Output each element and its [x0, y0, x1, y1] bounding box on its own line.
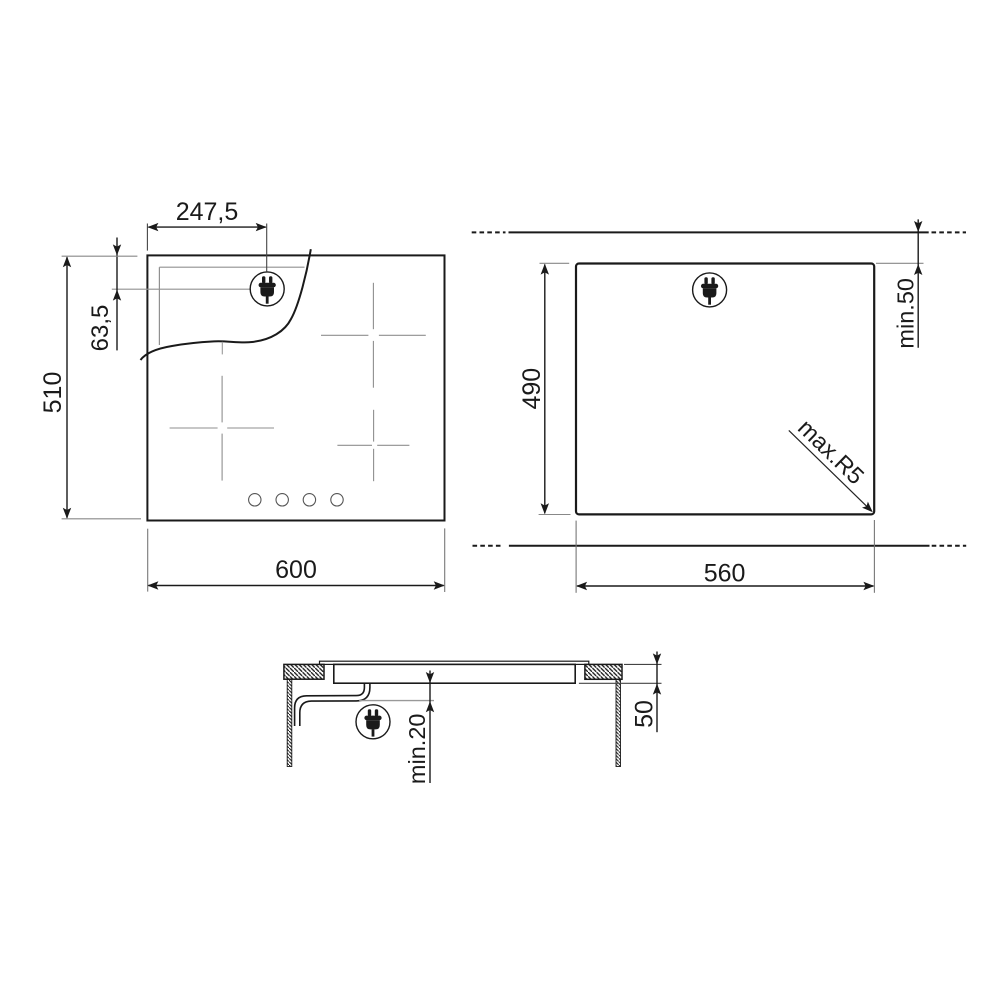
svg-text:min.20: min.20 — [404, 714, 430, 785]
svg-text:50: 50 — [631, 700, 659, 728]
svg-text:490: 490 — [518, 368, 546, 410]
svg-text:63,5: 63,5 — [87, 305, 114, 352]
svg-text:247,5: 247,5 — [176, 198, 239, 226]
svg-text:max.R5: max.R5 — [793, 414, 869, 489]
svg-text:560: 560 — [704, 560, 746, 588]
svg-text:510: 510 — [39, 372, 67, 414]
svg-text:min.50: min.50 — [893, 278, 919, 349]
svg-text:600: 600 — [275, 556, 317, 584]
